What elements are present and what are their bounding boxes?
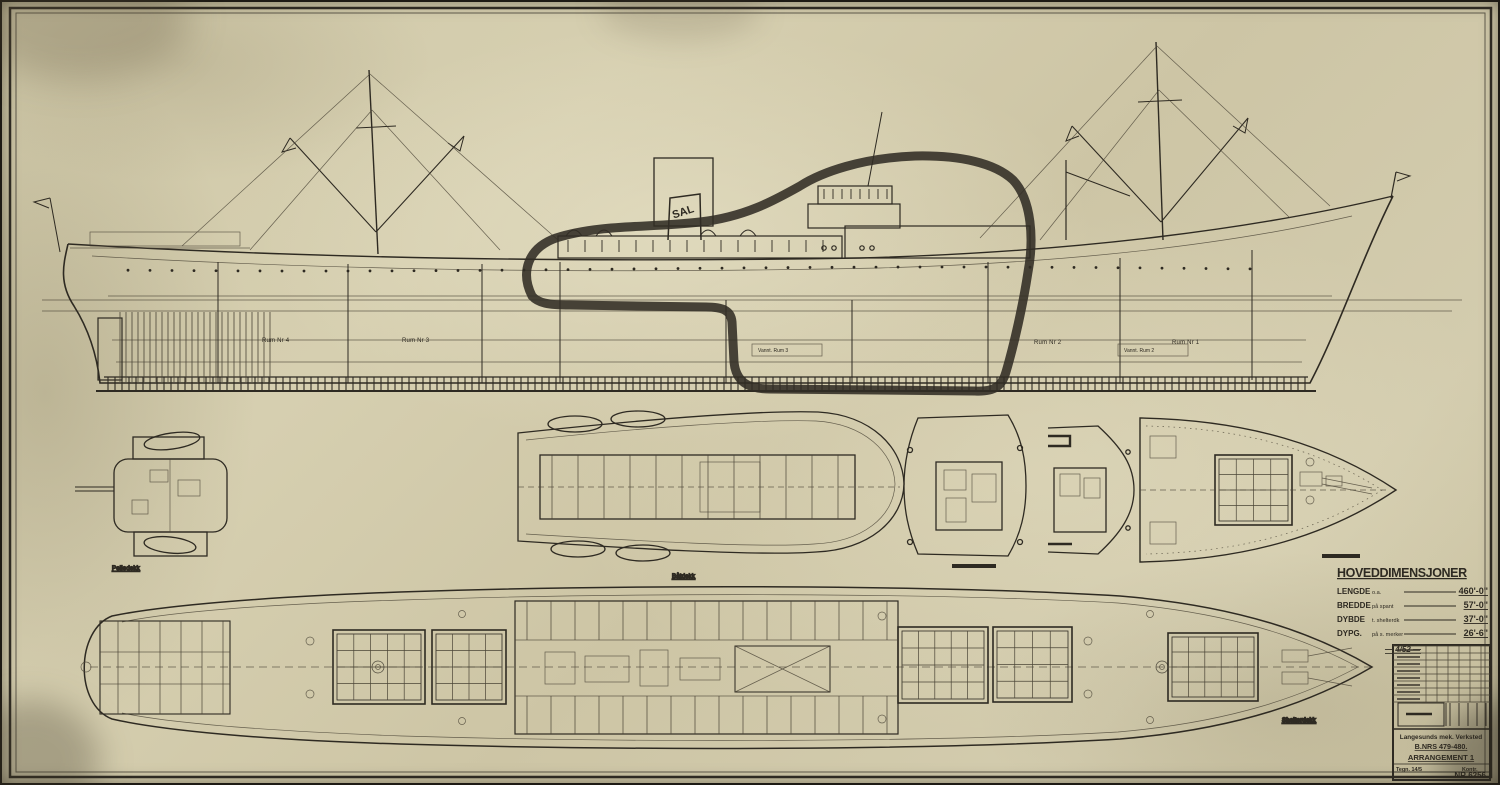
build-numbers: B.NRS 479-480. <box>1415 742 1468 751</box>
forecastle-deck-plan <box>1140 418 1396 562</box>
hold-label: Rum Nr 3 <box>402 338 430 344</box>
revision-table <box>1393 646 1490 702</box>
dimension-qualifier: på spant <box>1372 603 1394 610</box>
dimension-value: 57'-0" <box>1464 600 1488 610</box>
sheet-border <box>10 8 1491 777</box>
deckhouse-plan-fragment-2 <box>1048 426 1134 554</box>
title-block: Langesunds mek. Verksted B.NRS 479-480. … <box>1393 645 1490 780</box>
dimension-value: 26'-6" <box>1464 628 1488 638</box>
hold-label: Rum Nr 4 <box>262 338 290 344</box>
dimension-qualifier: på s. merker <box>1372 631 1403 638</box>
main-deck-plan: Shelterdekk <box>81 587 1372 749</box>
dimension-label: DYPG. <box>1337 629 1362 638</box>
lower-hold-label: Vannt. Rum 2 <box>1124 348 1154 354</box>
ship-general-arrangement-drawing: Rum Nr 4 Rum Nr 3 Rum Nr 2 Rum Nr 1 Vann… <box>0 0 1500 785</box>
foremast <box>182 70 558 254</box>
bow-flag <box>1396 172 1410 181</box>
dimensions-title: HOVEDDIMENSJONER <box>1337 566 1467 580</box>
lower-hold-label-boxes: Vannt. Rum 3 Vannt. Rum 2 <box>752 344 1188 356</box>
deck-fittings <box>306 611 1352 725</box>
lower-hold-label: Vannt. Rum 3 <box>758 348 788 354</box>
bridge-top-plan-label: Peiledekk <box>112 566 141 572</box>
dimension-label: DYBDE <box>1337 615 1366 624</box>
accommodation-block <box>515 601 898 734</box>
main-dimensions-table: HOVEDDIMENSJONER LENGDEo.a.460'-0"BREDDE… <box>1337 566 1488 654</box>
keel-hatching <box>108 377 1305 391</box>
dimension-value: 460'-0" <box>1459 586 1488 596</box>
dimension-qualifier: o.a. <box>1372 590 1382 596</box>
dimension-qualifier: t. shelterdk <box>1372 618 1400 624</box>
shipyard-name: Langesunds mek. Verksted <box>1400 734 1482 741</box>
stern-details <box>34 198 270 382</box>
boat-deck-plan-label: Båtdekk <box>672 573 696 580</box>
blueprint-sheet: Rum Nr 4 Rum Nr 3 Rum Nr 2 Rum Nr 1 Vann… <box>0 0 1500 785</box>
drawing-title: ARRANGEMENT 1 <box>1408 753 1475 762</box>
dimension-label: BREDDE <box>1337 601 1371 610</box>
hull-outline <box>64 196 1394 383</box>
jackstaff <box>1391 172 1396 198</box>
main-deck-plan-label: Shelterdekk <box>1282 718 1317 724</box>
bridge-top-plan: Peiledekk <box>75 429 227 572</box>
dimension-value: 37'-0" <box>1464 614 1488 624</box>
hold-label: Rum Nr 2 <box>1034 340 1062 346</box>
dimension-label: LENGDE <box>1337 587 1371 596</box>
porthole-row <box>127 266 1252 273</box>
hold-label: Rum Nr 1 <box>1172 340 1200 346</box>
deckhouse-plan-fragment-1 <box>904 415 1026 566</box>
boat-deck-plan: Båtdekk <box>518 411 904 580</box>
stern-deckhouse-plan <box>81 621 230 714</box>
ship-profile-view: Rum Nr 4 Rum Nr 3 Rum Nr 2 Rum Nr 1 Vann… <box>34 42 1462 391</box>
